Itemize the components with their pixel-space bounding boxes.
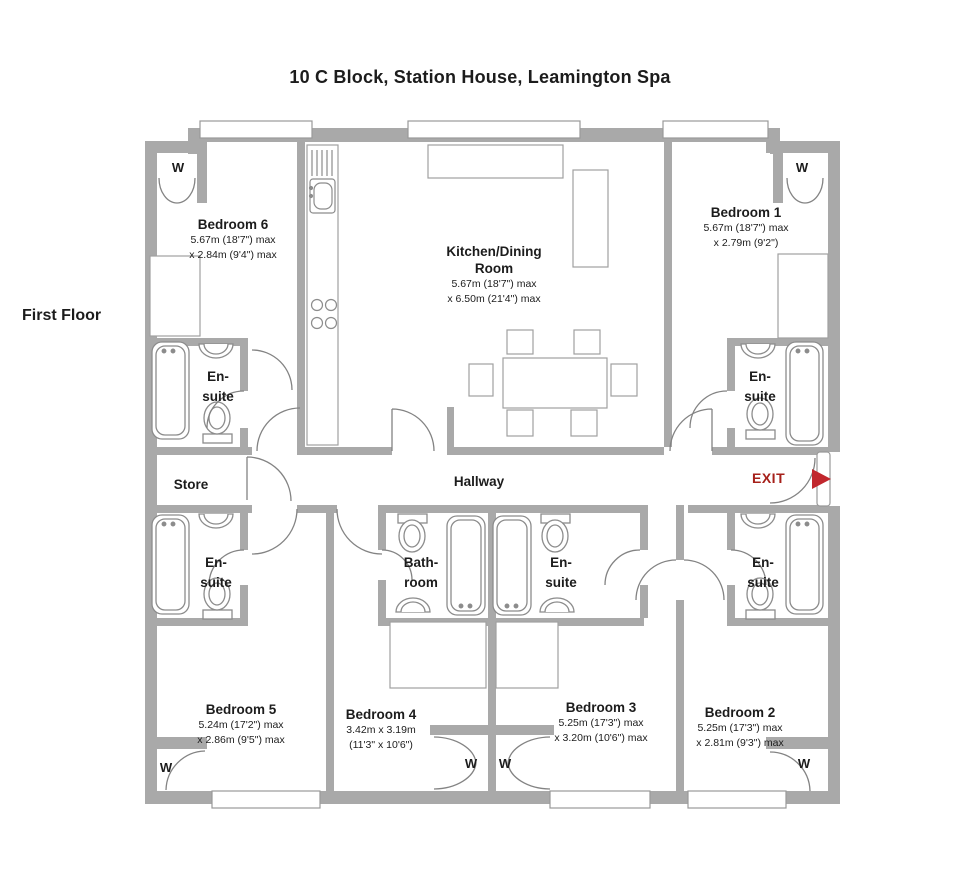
sink-icon xyxy=(741,514,775,528)
toilet-icon xyxy=(398,514,427,552)
wardrobe-label: W xyxy=(795,756,813,771)
room-dim: x 6.50m (21'4") max xyxy=(400,292,588,307)
ensuite-label: En- suite xyxy=(531,553,591,593)
bedroom6-label: Bedroom 6 5.67m (18'7") max x 2.84m (9'4… xyxy=(152,216,314,263)
ensuite-label: En- suite xyxy=(188,367,248,407)
door-arc xyxy=(605,550,640,585)
kitchen-label: Kitchen/Dining Room 5.67m (18'7") max x … xyxy=(400,243,588,307)
room-name: En- xyxy=(188,367,248,387)
room-dim: 3.42m x 3.19m xyxy=(309,723,453,738)
room-name: En- xyxy=(730,367,790,387)
kitchen-sink-icon xyxy=(310,179,336,213)
room-dim: (11'3" x 10'6") xyxy=(309,738,453,753)
door-arc xyxy=(684,560,724,600)
store-label: Store xyxy=(155,477,227,492)
room-name: Bedroom 6 xyxy=(152,216,314,233)
bathtub-icon xyxy=(152,342,189,439)
bedroom2-label: Bedroom 2 5.25m (17'3") max x 2.81m (9'3… xyxy=(664,704,816,751)
door-arc xyxy=(252,509,297,554)
room-name: suite xyxy=(730,387,790,407)
bathtub-icon xyxy=(152,515,189,614)
room-dim: 5.25m (17'3") max xyxy=(520,716,682,731)
sink-icon xyxy=(540,598,574,612)
worktop-island xyxy=(428,145,563,178)
room-name: Bedroom 2 xyxy=(664,704,816,721)
room-name: Bath- xyxy=(391,553,451,573)
wardrobe-label: W xyxy=(462,756,480,771)
dining-table xyxy=(503,358,607,408)
bedroom3-label: Bedroom 3 5.25m (17'3") max x 3.20m (10'… xyxy=(520,699,682,746)
chair xyxy=(611,364,637,396)
room-name: Bedroom 3 xyxy=(520,699,682,716)
room-name: suite xyxy=(186,573,246,593)
door-arc xyxy=(392,409,434,451)
floor-plan-drawing xyxy=(0,0,980,873)
room-name: suite xyxy=(188,387,248,407)
hallway-label: Hallway xyxy=(424,474,534,489)
wardrobe-unit xyxy=(390,622,486,688)
room-name: room xyxy=(391,573,451,593)
page-title: 10 C Block, Station House, Leamington Sp… xyxy=(140,70,820,85)
floor-label: First Floor xyxy=(22,308,152,323)
window xyxy=(550,791,650,808)
door-arc xyxy=(670,409,712,451)
wardrobe-doors xyxy=(159,178,195,203)
window xyxy=(688,791,786,808)
door-arc xyxy=(247,457,291,501)
bedroom1-label: Bedroom 1 5.67m (18'7") max x 2.79m (9'2… xyxy=(665,204,827,251)
sink-icon xyxy=(199,514,233,528)
room-dim: 5.67m (18'7") max xyxy=(152,233,314,248)
sink-icon xyxy=(199,344,233,358)
room-dim: x 2.84m (9'4") max xyxy=(152,248,314,263)
room-dim: 5.67m (18'7") max xyxy=(400,277,588,292)
room-dim: 5.25m (17'3") max xyxy=(664,721,816,736)
chair xyxy=(469,364,493,396)
wardrobe-unit xyxy=(496,622,558,688)
chair xyxy=(507,330,533,354)
room-name: En- xyxy=(186,553,246,573)
room-dim: x 2.86m (9'5") max xyxy=(160,733,322,748)
door-arc xyxy=(252,350,292,390)
bathtub-icon xyxy=(786,342,823,445)
wardrobe-label: W xyxy=(157,760,175,775)
wardrobe-label: W xyxy=(169,160,187,175)
ensuite-label: En- suite xyxy=(733,553,793,593)
toilet-icon xyxy=(541,514,570,552)
sink-icon xyxy=(396,598,430,612)
chair xyxy=(574,330,600,354)
bathtub-icon xyxy=(493,516,531,615)
room-dim: 5.24m (17'2") max xyxy=(160,718,322,733)
room-dim: x 2.79m (9'2") xyxy=(665,236,827,251)
room-name: suite xyxy=(733,573,793,593)
window xyxy=(663,121,768,138)
chair xyxy=(571,410,597,436)
room-dim: x 2.81m (9'3") max xyxy=(664,736,816,751)
room-dim: x 3.20m (10'6") max xyxy=(520,731,682,746)
ensuite-label: En- suite xyxy=(186,553,246,593)
ensuite-label: En- suite xyxy=(730,367,790,407)
door-arc xyxy=(337,509,382,554)
room-name: Room xyxy=(400,260,588,277)
room-name: Bedroom 5 xyxy=(160,701,322,718)
chair xyxy=(507,410,533,436)
bed xyxy=(778,254,828,338)
wardrobe-doors xyxy=(787,178,823,203)
room-name: suite xyxy=(531,573,591,593)
bathroom-label: Bath- room xyxy=(391,553,451,593)
room-dim: 5.67m (18'7") max xyxy=(665,221,827,236)
bed xyxy=(150,256,200,336)
exit-label: EXIT xyxy=(752,471,798,486)
floor-plan: 10 C Block, Station House, Leamington Sp… xyxy=(0,0,980,873)
door-arc xyxy=(257,408,300,451)
bedroom4-label: Bedroom 4 3.42m x 3.19m (11'3" x 10'6") xyxy=(309,706,453,753)
room-name: Kitchen/Dining xyxy=(400,243,588,260)
bedroom5-label: Bedroom 5 5.24m (17'2") max x 2.86m (9'5… xyxy=(160,701,322,748)
room-name: Bedroom 1 xyxy=(665,204,827,221)
wardrobe-label: W xyxy=(793,160,811,175)
room-name: En- xyxy=(531,553,591,573)
bathtub-icon xyxy=(447,516,485,615)
wardrobe-label: W xyxy=(496,756,514,771)
room-name: Bedroom 4 xyxy=(309,706,453,723)
room-name: En- xyxy=(733,553,793,573)
window xyxy=(212,791,320,808)
window xyxy=(200,121,312,138)
window xyxy=(408,121,580,138)
sink-icon xyxy=(741,344,775,358)
